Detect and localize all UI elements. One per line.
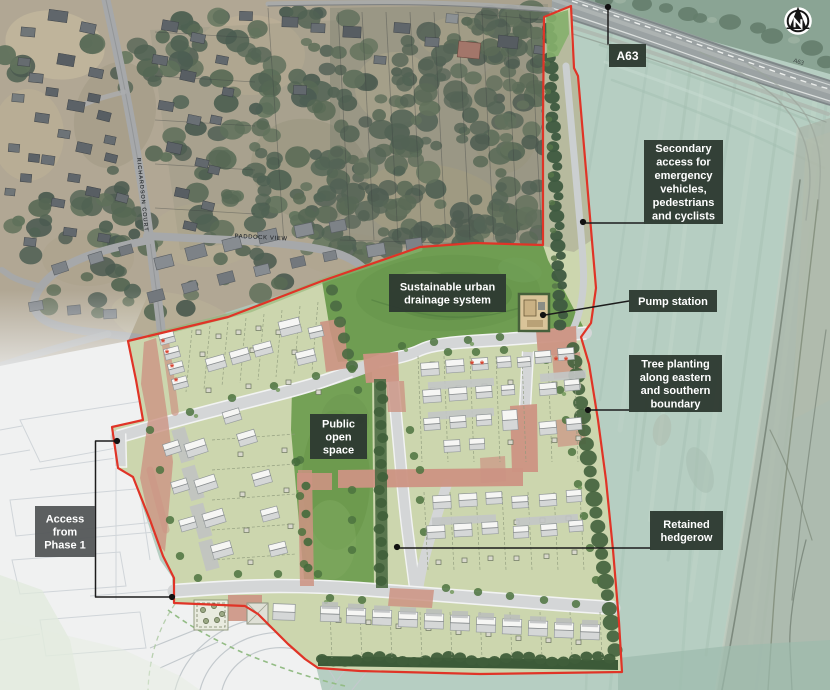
svg-text:*: * xyxy=(165,348,170,360)
svg-text:Public: Public xyxy=(322,418,355,430)
svg-text:Secondary: Secondary xyxy=(655,143,712,155)
svg-text:access for: access for xyxy=(656,157,711,169)
svg-text:*: * xyxy=(480,359,485,371)
svg-text:and southern: and southern xyxy=(641,385,711,397)
svg-text:vehicles,: vehicles, xyxy=(660,184,706,196)
svg-text:Sustainable urban: Sustainable urban xyxy=(400,281,496,293)
svg-text:Access: Access xyxy=(46,513,85,525)
svg-text:Phase 1: Phase 1 xyxy=(44,540,86,552)
svg-text:A63: A63 xyxy=(616,49,638,63)
svg-text:boundary: boundary xyxy=(650,398,701,410)
svg-text:Pump station: Pump station xyxy=(638,296,708,308)
svg-text:*: * xyxy=(554,355,559,367)
svg-text:Tree planting: Tree planting xyxy=(641,359,709,371)
svg-text:*: * xyxy=(170,362,175,374)
svg-text:drainage system: drainage system xyxy=(404,295,491,307)
svg-text:Retained: Retained xyxy=(663,519,709,531)
svg-text:open: open xyxy=(325,432,352,444)
svg-text:*: * xyxy=(174,376,179,388)
svg-text:space: space xyxy=(323,445,354,457)
svg-text:emergency: emergency xyxy=(654,170,713,182)
svg-text:*: * xyxy=(564,355,569,367)
svg-text:pedestrians: pedestrians xyxy=(653,197,715,209)
svg-text:along eastern: along eastern xyxy=(640,372,712,384)
svg-text:hedgerow: hedgerow xyxy=(661,532,713,544)
svg-text:from: from xyxy=(53,527,78,539)
svg-text:*: * xyxy=(470,359,475,371)
svg-text:and cyclists: and cyclists xyxy=(652,211,715,223)
